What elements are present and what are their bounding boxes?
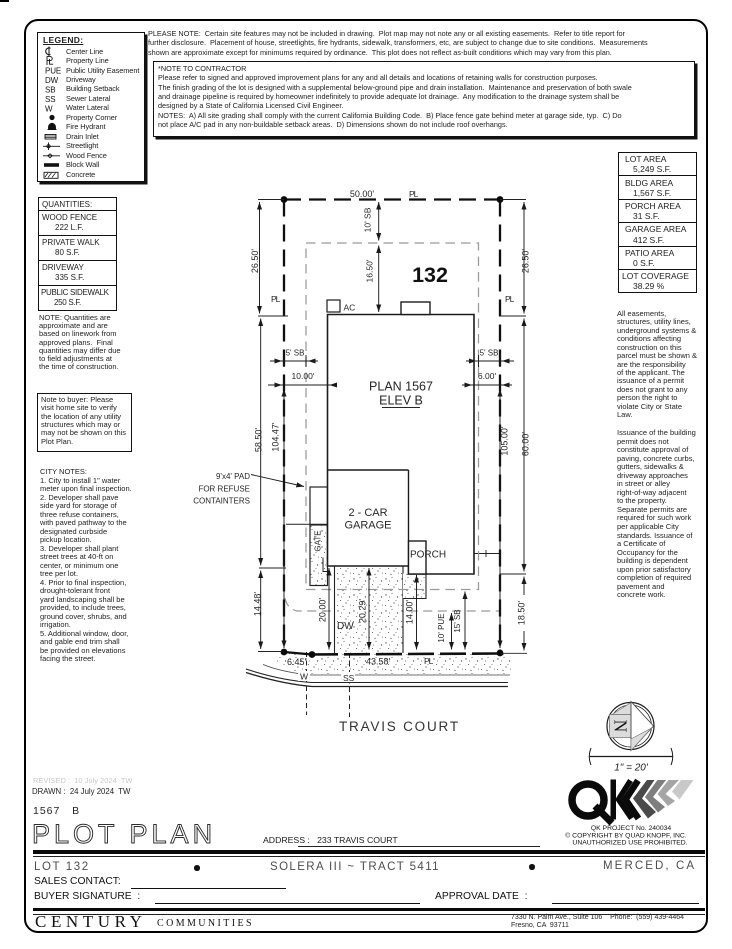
svg-text:20.00': 20.00' [318,598,328,623]
svg-text:14.48': 14.48' [253,592,263,617]
svg-text:PLAN 1567: PLAN 1567 [369,380,433,394]
svg-text:5' SB: 5' SB [286,349,305,358]
svg-text:CONTAINTERS: CONTAINTERS [193,497,250,506]
svg-text:SS: SS [343,673,355,683]
svg-text:105.00': 105.00' [500,426,510,456]
svg-text:26.50': 26.50' [250,249,260,274]
svg-text:ELEV B: ELEV B [379,394,423,408]
svg-text:58.50': 58.50' [254,428,264,453]
svg-text:FOR REFUSE: FOR REFUSE [198,485,250,494]
svg-text:132: 132 [412,263,448,287]
svg-text:UNAUTHORIZED USE PROHIBITED.: UNAUTHORIZED USE PROHIBITED. [572,840,687,847]
svg-text:© COPYRIGHT BY QUAD KNOPF, I: © COPYRIGHT BY QUAD KNOPF, INC. [565,832,687,840]
svg-text:PL: PL [505,294,515,304]
svg-text:14.00': 14.00' [405,600,415,625]
svg-text:10.00': 10.00' [292,371,315,381]
svg-text:10' SB: 10' SB [363,207,373,232]
svg-text:50.00': 50.00' [350,189,375,199]
svg-text:GATE: GATE [314,530,323,551]
svg-text:10' PUE: 10' PUE [437,613,446,642]
svg-text:1" = 20': 1" = 20' [614,763,649,774]
svg-text:N: N [611,720,631,733]
svg-text:TRAVIS COURT: TRAVIS COURT [339,719,460,734]
svg-text:6.00': 6.00' [478,371,497,381]
svg-text:6.45': 6.45' [287,657,307,667]
svg-text:60.00': 60.00' [521,432,531,457]
svg-text:15' SB: 15' SB [453,609,462,632]
svg-text:AC: AC [344,303,356,313]
svg-text:9'x4' PAD: 9'x4' PAD [216,472,250,481]
svg-text:26.50': 26.50' [521,249,531,274]
svg-text:PL: PL [271,294,281,304]
svg-text:PORCH: PORCH [410,550,446,561]
svg-text:43.58': 43.58' [366,657,391,667]
svg-text:W: W [300,672,308,682]
svg-text:QK PROJECT No. 240034: QK PROJECT No. 240034 [591,825,672,832]
svg-text:104.47': 104.47' [271,422,281,452]
svg-text:DW: DW [337,621,354,632]
svg-text:PL: PL [424,656,434,666]
svg-text:5' SB: 5' SB [480,349,499,358]
svg-text:PL: PL [409,189,419,199]
svg-text:2 - CAR: 2 - CAR [348,507,387,519]
svg-text:18.50': 18.50' [517,601,527,626]
svg-text:16.50': 16.50' [365,259,375,282]
svg-text:GARAGE: GARAGE [344,520,391,532]
svg-text:20.29': 20.29' [358,599,368,624]
